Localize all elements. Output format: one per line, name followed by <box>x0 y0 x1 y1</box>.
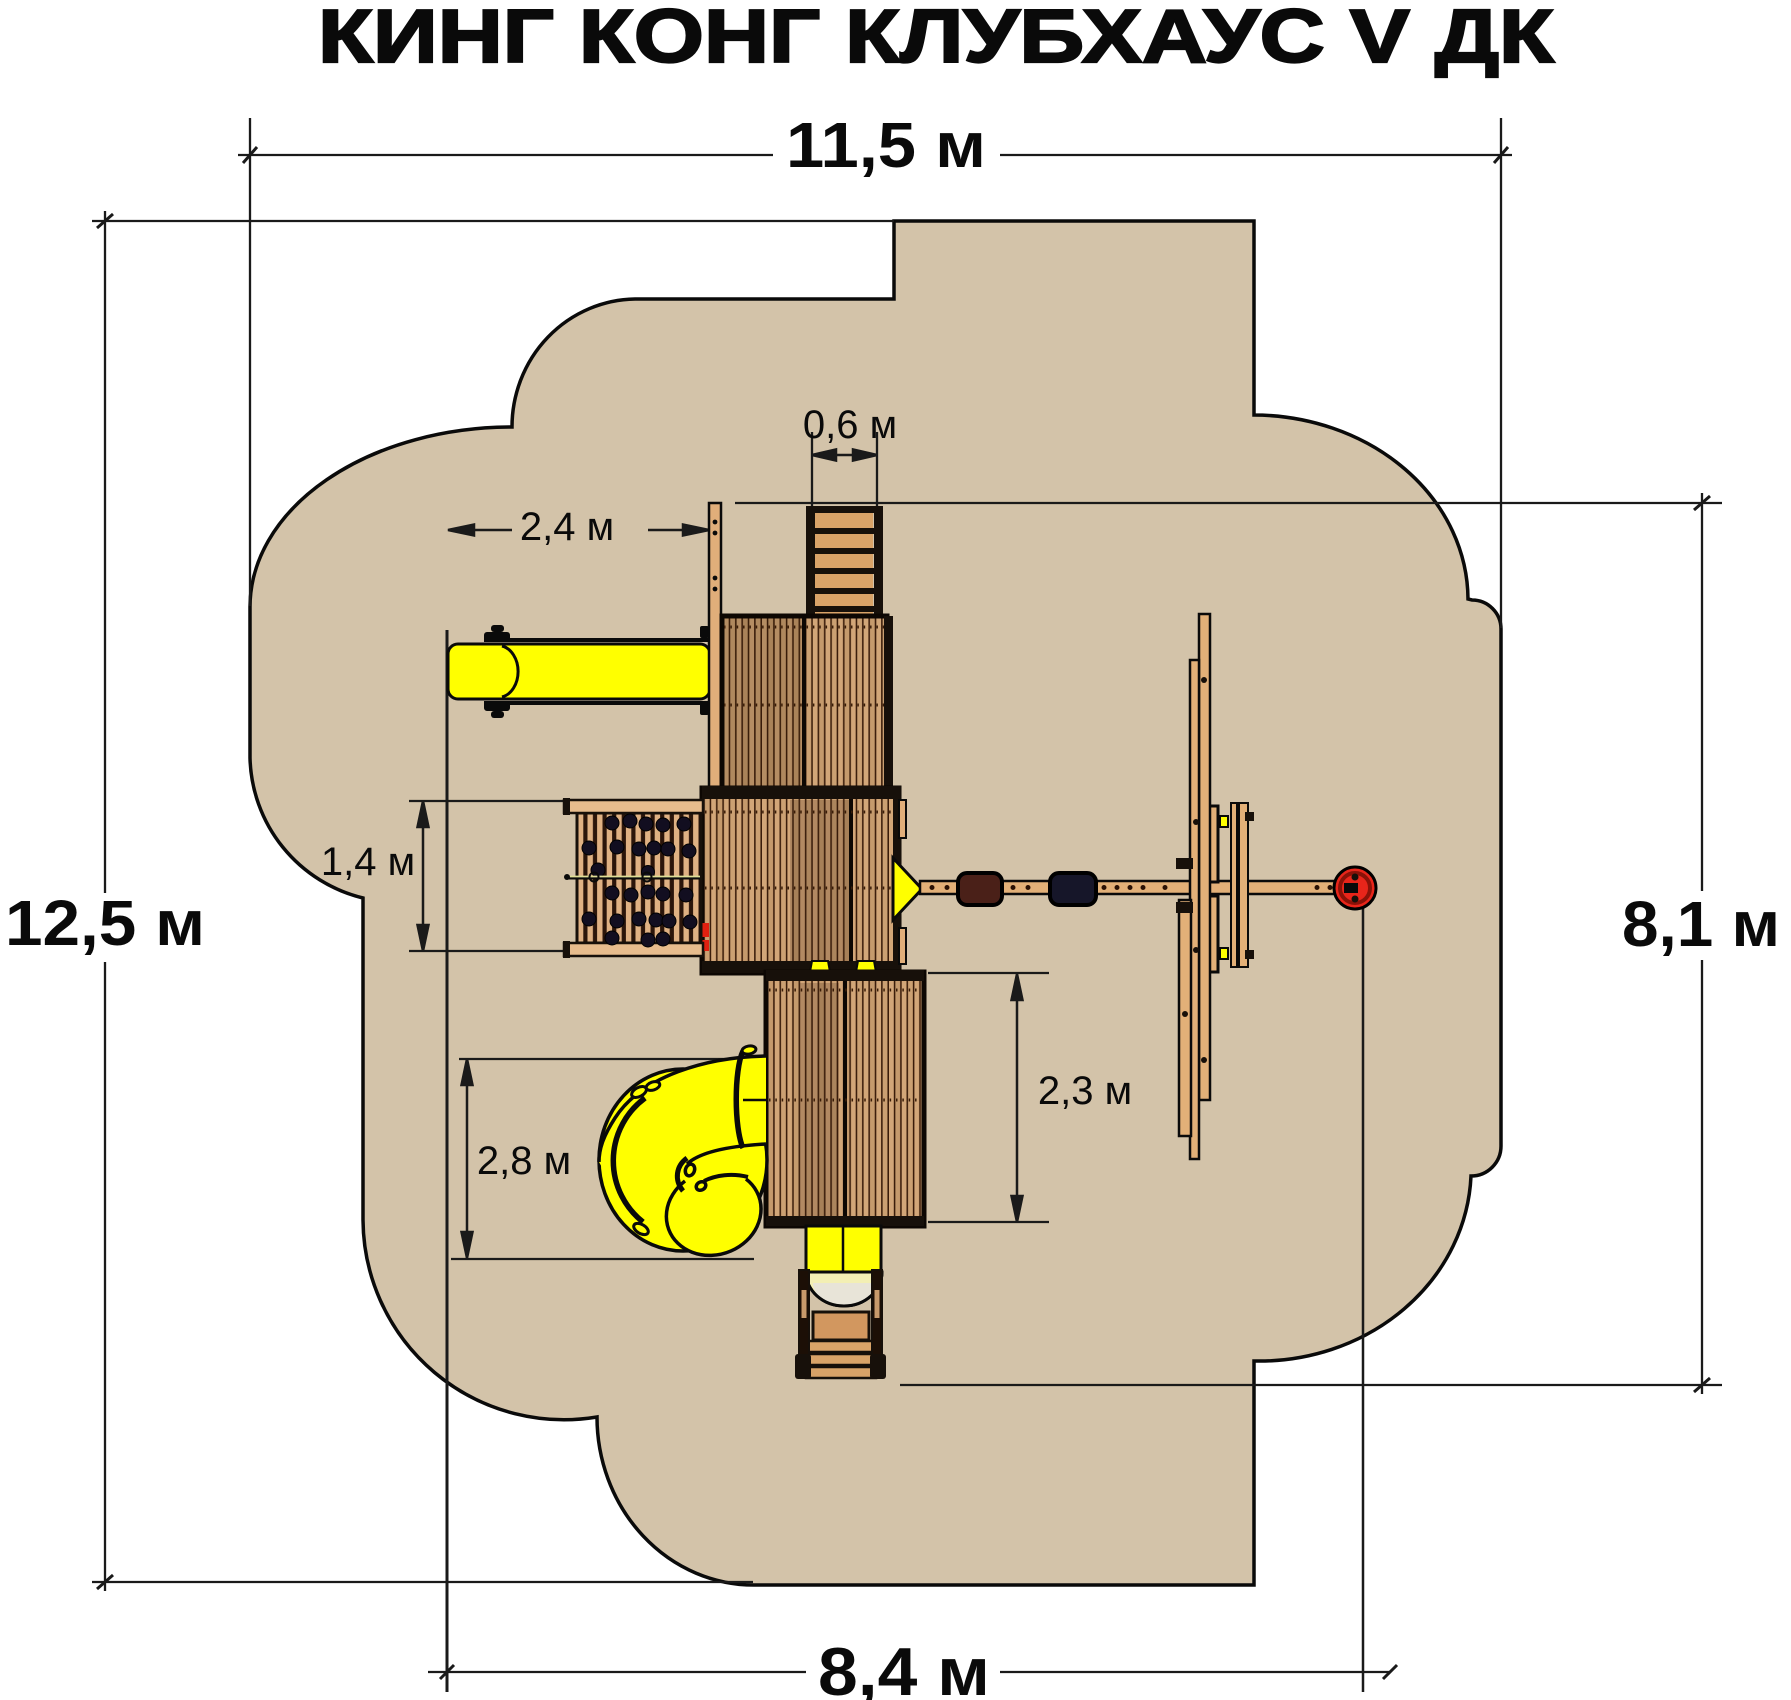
svg-text:8,1 м: 8,1 м <box>1622 888 1780 960</box>
svg-text:12,5 м: 12,5 м <box>5 887 205 959</box>
svg-text:2,8 м: 2,8 м <box>477 1139 571 1183</box>
svg-text:0,6 м: 0,6 м <box>803 403 897 447</box>
svg-text:2,3 м: 2,3 м <box>1038 1069 1132 1113</box>
svg-text:2,4 м: 2,4 м <box>520 505 614 549</box>
svg-text:КИНГ КОНГ КЛУБХАУС V ДК: КИНГ КОНГ КЛУБХАУС V ДК <box>318 0 1554 78</box>
svg-text:1,4 м: 1,4 м <box>321 840 415 884</box>
svg-text:8,4 м: 8,4 м <box>818 1634 990 1700</box>
svg-text:11,5 м: 11,5 м <box>786 109 986 181</box>
